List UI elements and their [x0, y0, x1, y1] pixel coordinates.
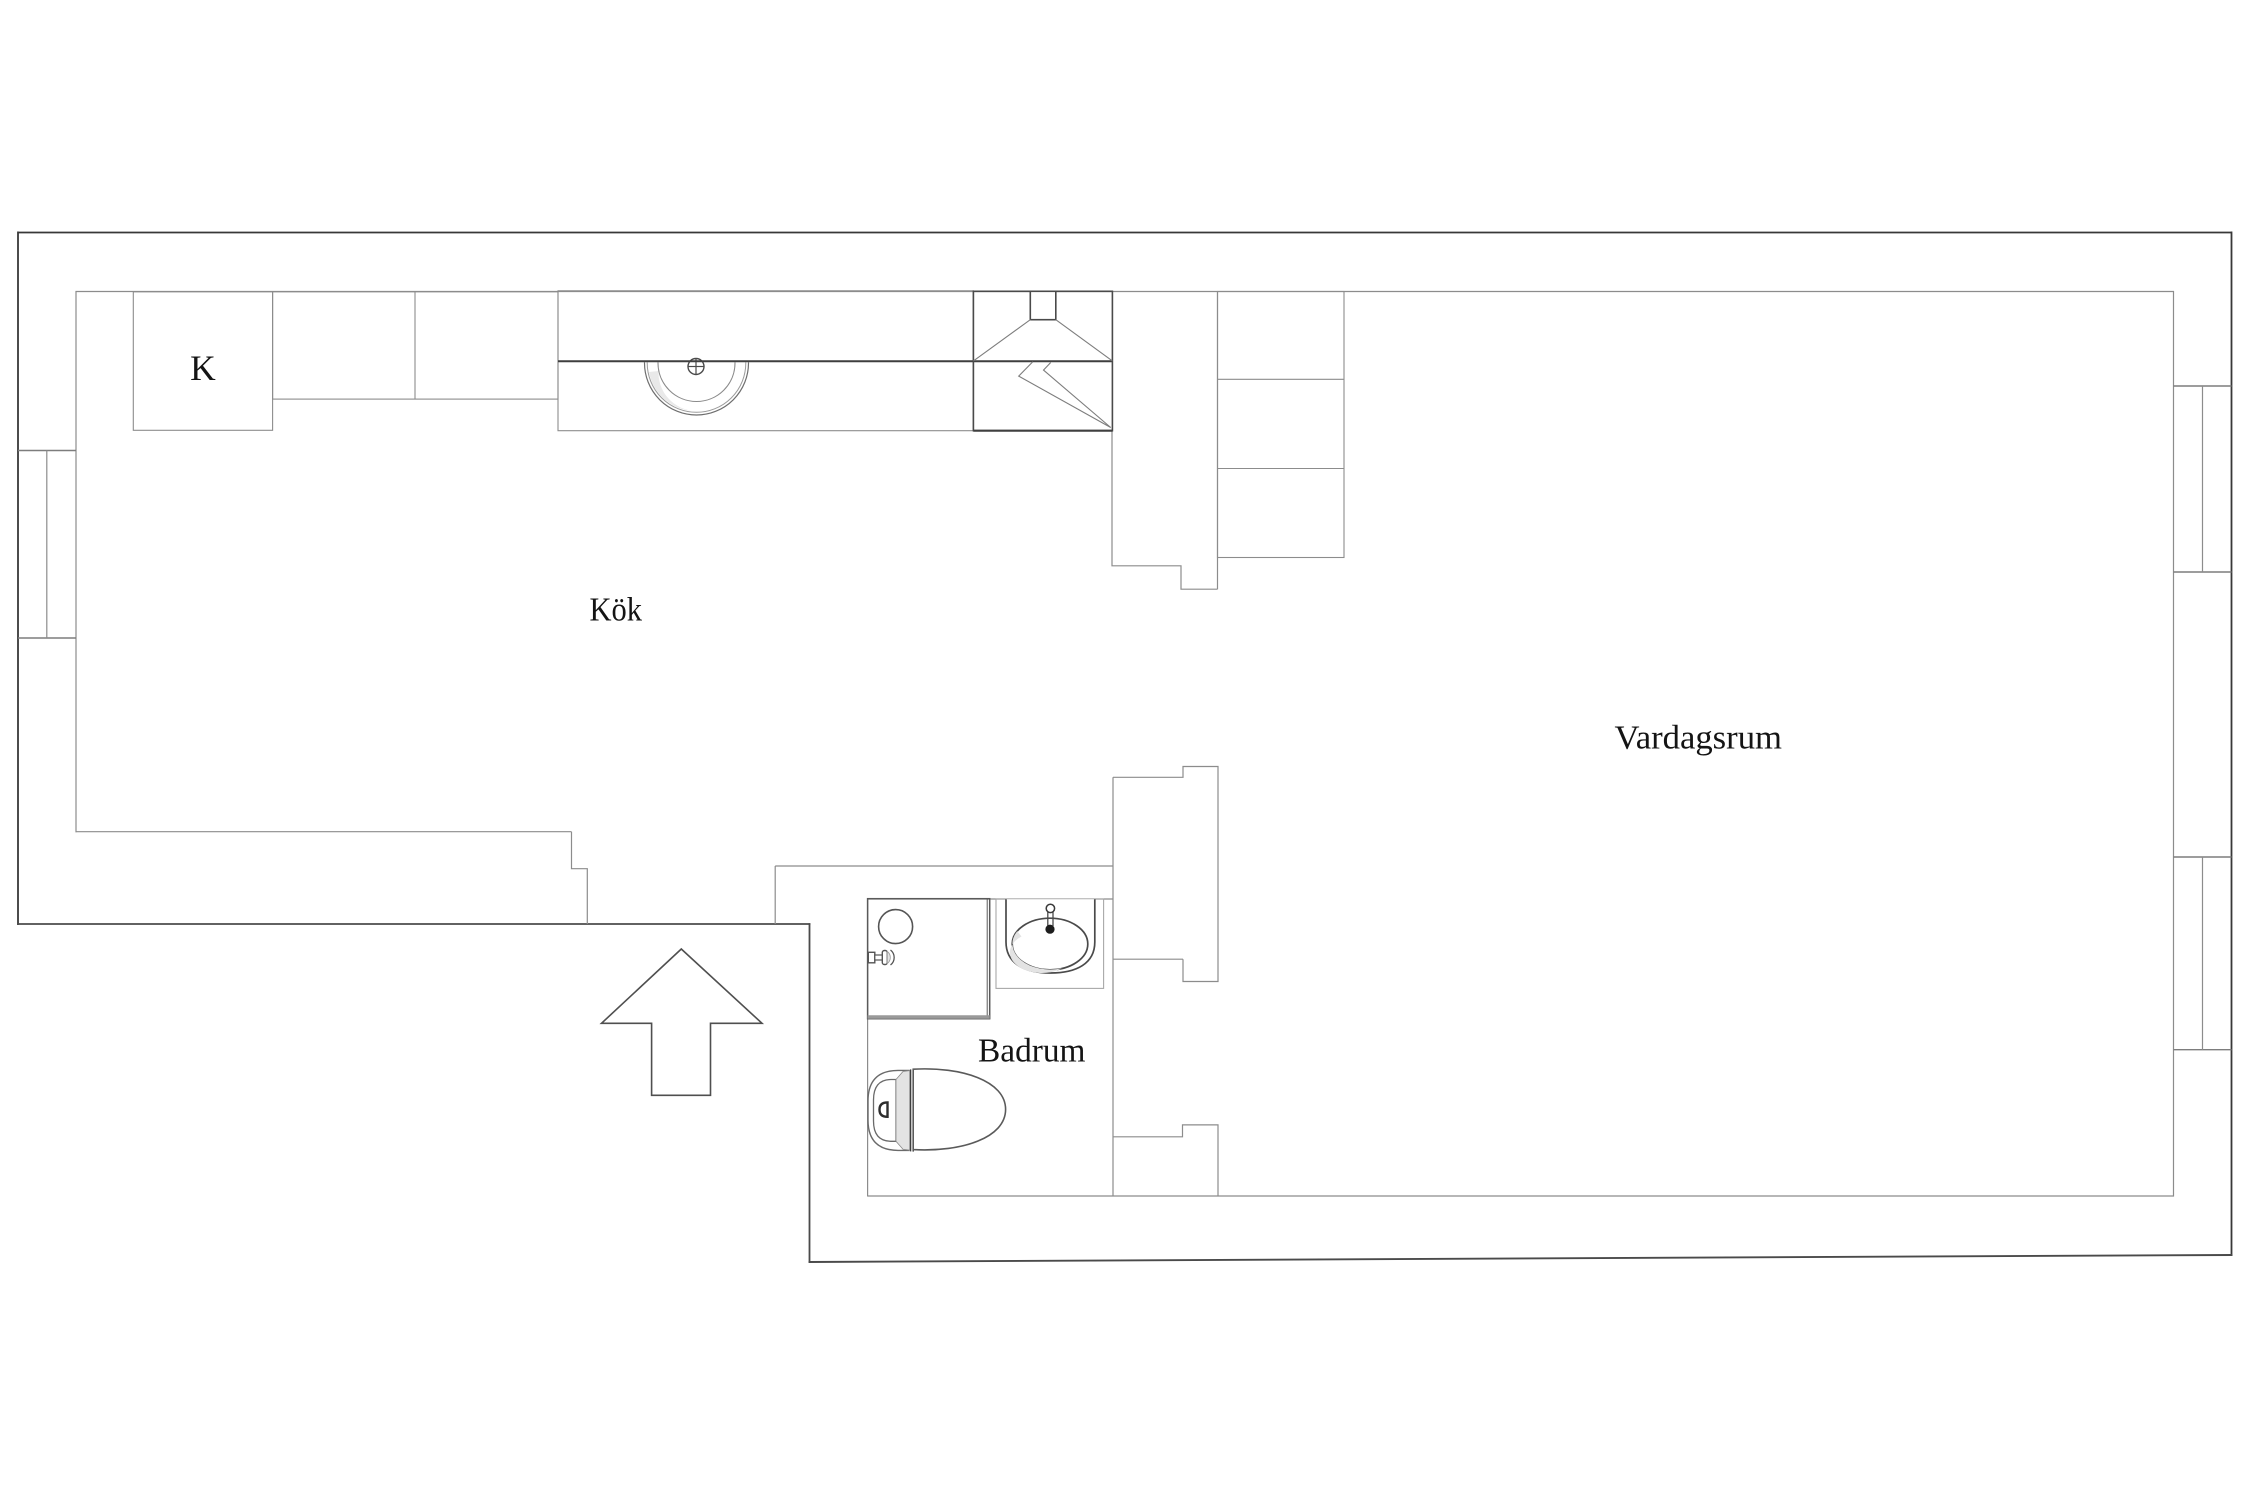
- svg-text:Badrum: Badrum: [978, 1032, 1086, 1069]
- svg-text:Vardagsrum: Vardagsrum: [1615, 719, 1783, 756]
- svg-text:K: K: [190, 348, 216, 388]
- svg-text:Kök: Kök: [590, 591, 643, 628]
